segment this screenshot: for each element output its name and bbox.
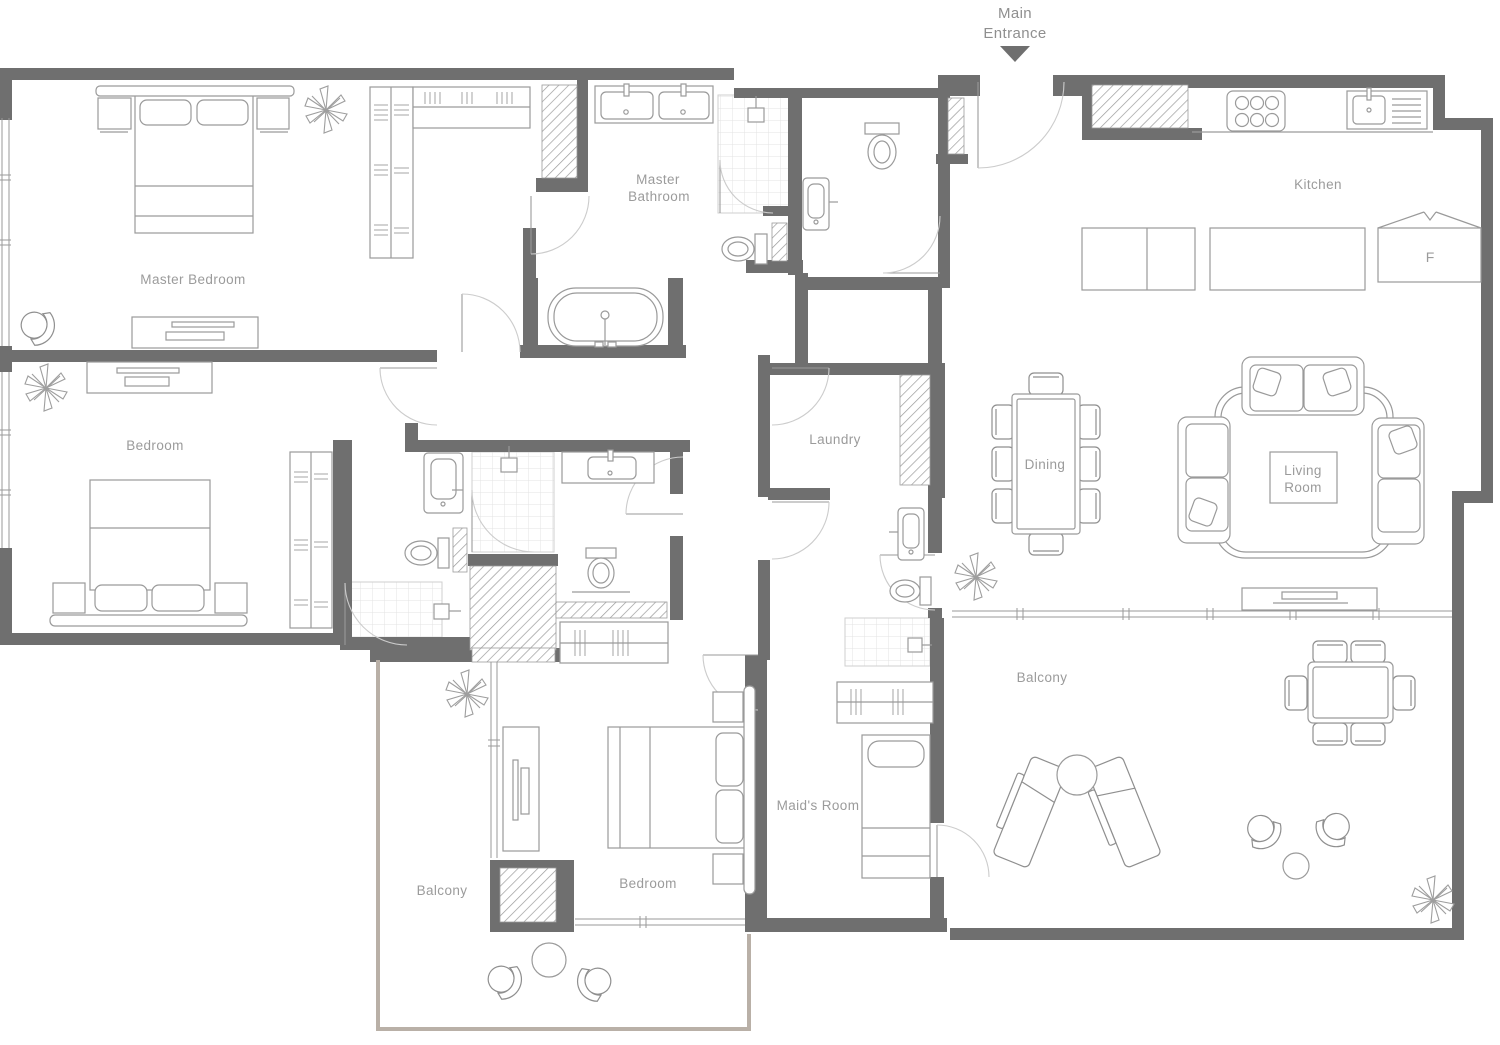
main-entrance-label-1: Main [998, 5, 1032, 22]
sofa-left [1178, 417, 1230, 543]
master-bathroom-label-1: Master [636, 172, 680, 187]
maids-room-label: Maid's Room [777, 798, 860, 813]
maid-wc-toilet [890, 577, 931, 605]
shaft-entrance [948, 98, 964, 154]
window-bedroom-lower [575, 916, 745, 928]
plant-icon [446, 670, 488, 717]
bedroom3-dresser [560, 622, 668, 663]
bedroom-left-label: Bedroom [126, 438, 184, 453]
furniture [15, 84, 1481, 1006]
bedroom-left-bed [50, 480, 247, 626]
plant-icon [955, 553, 997, 600]
bath2-toilet [405, 538, 449, 568]
sofa-right [1372, 418, 1424, 544]
bath3-toilet [572, 548, 630, 592]
door-bedroom-left [380, 368, 437, 425]
bedroom-lower-tv-unit [503, 727, 539, 851]
living-room-label-2: Room [1284, 480, 1322, 495]
maid-bed [862, 735, 930, 878]
master-bed [96, 86, 294, 233]
bath3-vanity [562, 450, 654, 483]
powder-toilet [865, 123, 899, 169]
dining-label: Dining [1025, 457, 1066, 472]
balcony-right-label: Balcony [1017, 670, 1068, 685]
kitchen-sink [1347, 88, 1427, 129]
master-chair [15, 303, 60, 350]
kitchen-stove [1227, 91, 1285, 131]
master-bathtub [548, 288, 663, 347]
walkin-closet [370, 87, 530, 258]
bath2-shower-floor [342, 582, 442, 646]
door-master-bath [531, 196, 589, 254]
bath2-sink [424, 453, 463, 513]
door-powder-room [883, 216, 940, 273]
main-entrance-label-2: Entrance [983, 25, 1046, 42]
balcony-side-table [1057, 755, 1097, 795]
shaft-bedroom3 [500, 868, 556, 922]
master-vanity [595, 84, 713, 123]
living-tv-unit [1242, 588, 1377, 610]
shaft-wc [772, 223, 787, 261]
shaft-kitchen [1092, 85, 1188, 128]
maid-wc-sink [889, 508, 924, 560]
master-bedroom-label: Master Bedroom [140, 272, 245, 287]
door-maid-balcony [937, 825, 989, 877]
door-master-suite-hall [462, 294, 520, 352]
sofa-top [1242, 357, 1364, 415]
balcony-chair-set-left [482, 943, 617, 1006]
shaft-laundry [900, 375, 930, 485]
window-bedroom-left [0, 372, 11, 548]
door-hall-corridor [772, 502, 829, 559]
balcony-dining [1285, 641, 1415, 745]
floor-plan: Main Entrance Master Bedroom Master Bath… [0, 0, 1500, 1045]
bedroom-lower-label: Bedroom [619, 876, 677, 891]
kitchen-island [1082, 228, 1365, 290]
maid-wardrobe [837, 682, 933, 723]
door-main-entrance [978, 82, 1064, 168]
kitchen-label: Kitchen [1294, 177, 1342, 192]
kitchen-fridge [1378, 212, 1481, 282]
powder-sink [803, 178, 838, 230]
plant-icon [305, 86, 347, 133]
master-bathroom-label-2: Bathroom [628, 189, 690, 204]
balcony-chair-set-right [1239, 805, 1359, 879]
bedroom-lower-bed [608, 686, 755, 894]
shaft-balcony-edge [472, 648, 555, 662]
door-laundry [772, 368, 829, 425]
bedroom-left-dresser [87, 362, 212, 393]
living-room-label-1: Living [1284, 463, 1322, 478]
shaft-strip-bedroom3 [556, 602, 667, 618]
laundry-label: Laundry [809, 432, 861, 447]
shaft-closet [542, 85, 577, 178]
window-master-bedroom [0, 118, 11, 346]
living-sofa-set [1178, 357, 1424, 558]
bath2-shower-head [434, 604, 461, 619]
master-dresser [132, 317, 258, 348]
fridge-label: F [1426, 249, 1435, 265]
lounger [986, 753, 1067, 868]
entrance-arrow-icon [1000, 46, 1030, 62]
plant-icon [1412, 876, 1454, 923]
bedroom-left-wardrobe [290, 452, 332, 628]
balcony-left-label: Balcony [417, 883, 468, 898]
shaft-bath2 [453, 528, 467, 572]
floor-plan-svg: Main Entrance Master Bedroom Master Bath… [0, 0, 1500, 1045]
shaft-center [470, 566, 556, 650]
master-toilet [722, 234, 767, 264]
plant-icon [25, 364, 67, 411]
window-bedroom3-balcony [488, 662, 500, 858]
